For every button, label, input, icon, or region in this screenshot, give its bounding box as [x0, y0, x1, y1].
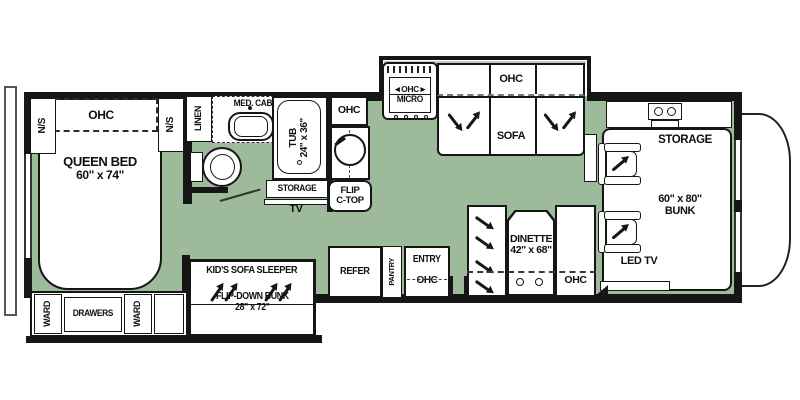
entry-label: ENTRY: [413, 255, 441, 266]
drawers-cabinet: DRAWERS: [64, 297, 122, 332]
bunk-label: 60" x 80" BUNK: [658, 194, 702, 218]
seatbelt-mark: [544, 113, 558, 130]
nightstand-left: N/S: [30, 98, 56, 154]
front-window-upper: [734, 140, 742, 200]
bedroom-ohc-label: OHC: [85, 109, 116, 122]
kitchen-overhead-cabinet: OHC: [330, 96, 368, 126]
bedroom-overhead-cabinet: OHC: [44, 98, 158, 132]
range-micro-label: MICRO: [397, 95, 423, 105]
med-cab-label: MED. CAB: [234, 99, 273, 109]
front-appliance: [648, 103, 682, 120]
tub: TUB 24" x 36": [272, 96, 328, 180]
sofa-ohc-label: OHC: [497, 74, 524, 86]
entry-ohc-label: OHC: [416, 276, 437, 287]
sofa-slide-right-wall: [587, 56, 591, 101]
seatbelt-mark: [466, 113, 480, 130]
dinette-cabinet: OHC: [555, 205, 596, 297]
seatbelt-mark: [448, 113, 462, 130]
nightstand-right: N/S: [158, 98, 184, 152]
tub-drain: [297, 160, 302, 165]
range-ohc-micro: ◄OHC► MICRO: [389, 77, 431, 113]
pantry-label: PANTRY: [388, 258, 396, 286]
entry-cabinet: ENTRY OHC: [404, 246, 450, 298]
bedroom-slide-bottom-wall: [26, 336, 192, 343]
linen-cabinet: LINEN: [186, 96, 212, 142]
sofa-slide-top-wall: [379, 56, 591, 60]
dinette-label: DINETTE 42" x 68": [507, 234, 555, 257]
sofa-overhead-cabinet: OHC: [437, 63, 585, 96]
pantry: PANTRY: [382, 246, 402, 298]
table-leg: [516, 278, 524, 286]
front-appliance-drawer: [651, 120, 679, 128]
bedroom-cabinet: [154, 294, 184, 334]
nightstand-right-label: N/S: [166, 117, 177, 132]
bath-storage-label: STORAGE: [278, 184, 317, 194]
passenger-seat: [598, 211, 644, 253]
sofa-label: SOFA: [495, 131, 527, 143]
kids-slide-bottom-wall: [182, 335, 322, 343]
dinette-slide-line: [467, 271, 596, 273]
front-window-lower: [734, 212, 742, 272]
tub-label: TUB 24" x 36": [289, 118, 311, 157]
kitchen-counter: [330, 126, 370, 180]
flip-countertop: FLIP C-TOP: [328, 180, 372, 212]
rear-bumper: [4, 86, 17, 316]
refer-label: REFER: [340, 266, 370, 277]
bathroom-sink-bowl: [234, 116, 268, 137]
wardrobe-right-label: WARD: [133, 301, 143, 327]
wardrobe-left: WARD: [34, 294, 62, 334]
kitchen-ohc-label: OHC: [338, 105, 360, 116]
range-unit: ◄OHC► MICRO: [382, 62, 438, 120]
entry-jamb-left: [450, 276, 453, 296]
kids-sofa-sleeper: KID'S SOFA SLEEPER FLIP-DOWN BUNK 28" x …: [188, 259, 316, 337]
top-wall-right: [588, 92, 742, 101]
led-tv-label: LED TV: [621, 256, 658, 268]
step-wedge: [594, 285, 608, 297]
dinette-ohc-label: OHC: [564, 275, 586, 286]
table-leg: [535, 278, 543, 286]
seatbelt-mark: [475, 280, 492, 293]
toilet-seat: [210, 154, 235, 180]
bathroom-storage: STORAGE: [266, 180, 328, 198]
rv-floorplan: ◄OHC► MICRO OHC SOFA QUEEN BED 60" x 74"…: [0, 0, 800, 400]
driver-seat: [598, 143, 644, 185]
dinette-bench: [467, 205, 507, 297]
range-grill: [387, 66, 433, 73]
rear-window: [24, 154, 32, 258]
tv-label: TV: [270, 204, 322, 216]
tv-console: [600, 281, 670, 291]
nightstand-left-label: N/S: [38, 118, 49, 133]
dinette-table: DINETTE 42" x 68": [507, 210, 555, 296]
range-knobs: [390, 115, 432, 119]
sofa: SOFA: [437, 96, 585, 156]
seatbelt-mark: [475, 216, 492, 229]
front-side-cabinet: [584, 134, 597, 182]
front-storage-label: STORAGE: [658, 134, 712, 146]
kitchen-sink: [334, 134, 366, 166]
kids-sofa-title: KID'S SOFA SLEEPER: [206, 265, 297, 276]
wardrobe-left-label: WARD: [43, 301, 53, 327]
seatbelt-mark: [562, 113, 576, 130]
flip-ctop-label: FLIP C-TOP: [336, 186, 363, 207]
linen-label: LINEN: [194, 106, 204, 131]
refrigerator: REFER: [328, 246, 382, 298]
flip-down-bunk-label: FLIP-DOWN BUNK 28" x 72": [216, 292, 289, 314]
drawers-label: DRAWERS: [73, 309, 113, 319]
wardrobe-right: WARD: [124, 294, 152, 334]
queen-bed-label: QUEEN BED 60" x 74": [63, 155, 137, 182]
cab-nose-outline: [737, 113, 791, 287]
seatbelt-mark: [475, 236, 492, 249]
bottom-wall-front: [590, 294, 742, 303]
bath-south-wall: [185, 187, 228, 193]
sink-faucet-dot: [248, 106, 252, 110]
